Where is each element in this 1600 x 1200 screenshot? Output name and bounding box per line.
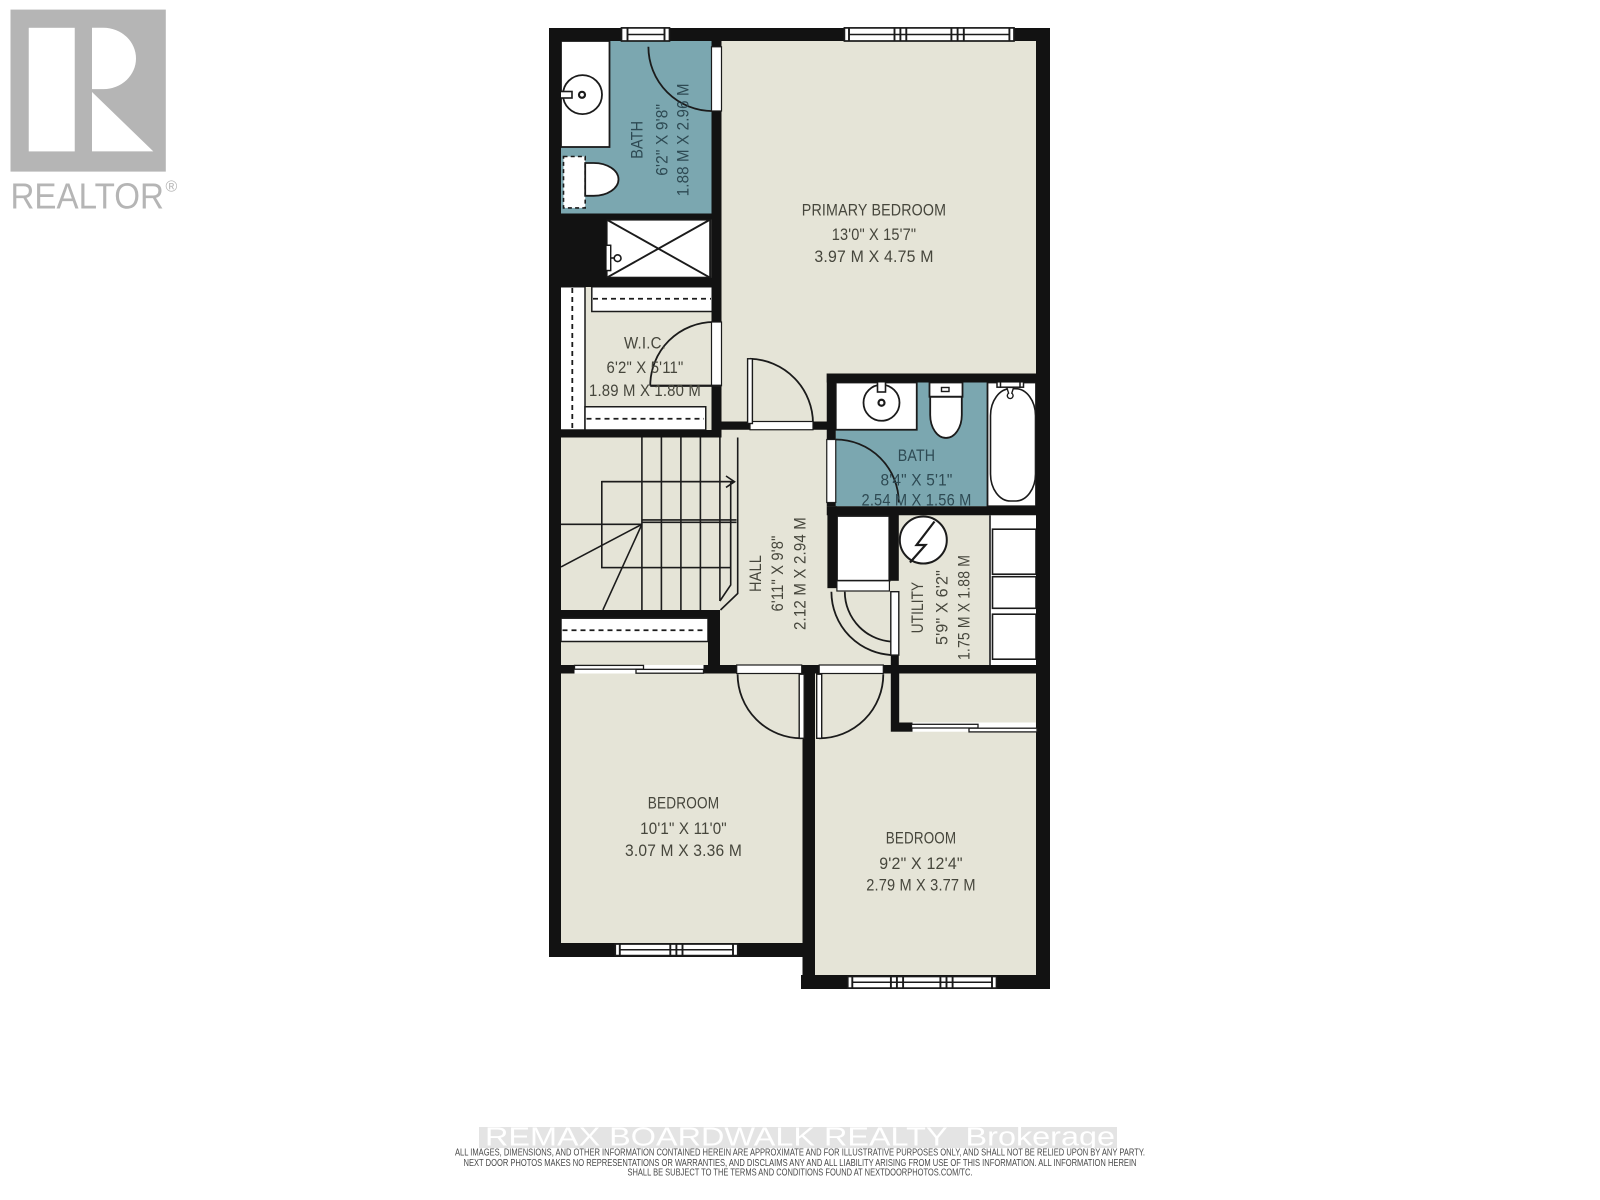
svg-text:®: ®	[166, 179, 178, 196]
svg-text:9'2" X 12'4": 9'2" X 12'4"	[879, 854, 963, 873]
svg-text:2.79 M X 3.77 M: 2.79 M X 3.77 M	[866, 876, 976, 895]
svg-text:3.07 M X 3.36 M: 3.07 M X 3.36 M	[625, 841, 742, 860]
svg-text:5'9" X 6'2": 5'9" X 6'2"	[932, 570, 951, 645]
svg-text:1.89 M X 1.80 M: 1.89 M X 1.80 M	[589, 381, 701, 400]
svg-text:8'4" X 5'1": 8'4" X 5'1"	[881, 471, 953, 490]
svg-text:BATH: BATH	[898, 446, 935, 465]
svg-text:3.97 M X 4.75 M: 3.97 M X 4.75 M	[814, 247, 933, 266]
svg-text:SHALL BE SUBJECT TO THE TERMS: SHALL BE SUBJECT TO THE TERMS AND CONDIT…	[628, 1168, 973, 1179]
svg-text:10'1" X 11'0": 10'1" X 11'0"	[640, 819, 727, 838]
svg-text:2.54 M X 1.56 M: 2.54 M X 1.56 M	[862, 491, 972, 510]
svg-text:1.88 M X 2.96 M: 1.88 M X 2.96 M	[674, 83, 693, 196]
svg-text:13'0" X 15'7": 13'0" X 15'7"	[832, 225, 916, 244]
svg-text:BEDROOM: BEDROOM	[648, 794, 719, 813]
svg-text:PRIMARY BEDROOM: PRIMARY BEDROOM	[802, 201, 946, 220]
svg-text:6'11" X 9'8": 6'11" X 9'8"	[768, 536, 787, 612]
svg-text:6'2" X 5'11": 6'2" X 5'11"	[607, 358, 684, 377]
svg-text:1.75 M X 1.88 M: 1.75 M X 1.88 M	[954, 555, 973, 660]
svg-text:W.I.C.: W.I.C.	[624, 333, 666, 352]
svg-text:BATH: BATH	[627, 121, 646, 159]
svg-text:ALL IMAGES, DIMENSIONS, AND OT: ALL IMAGES, DIMENSIONS, AND OTHER INFORM…	[455, 1147, 1145, 1158]
svg-text:6'2" X 9'8": 6'2" X 9'8"	[652, 104, 671, 176]
svg-text:UTILITY: UTILITY	[908, 582, 927, 634]
svg-text:REALTOR: REALTOR	[11, 176, 164, 217]
svg-text:BEDROOM: BEDROOM	[886, 829, 957, 848]
svg-text:HALL: HALL	[746, 555, 765, 592]
svg-text:2.12 M X 2.94 M: 2.12 M X 2.94 M	[791, 517, 810, 630]
